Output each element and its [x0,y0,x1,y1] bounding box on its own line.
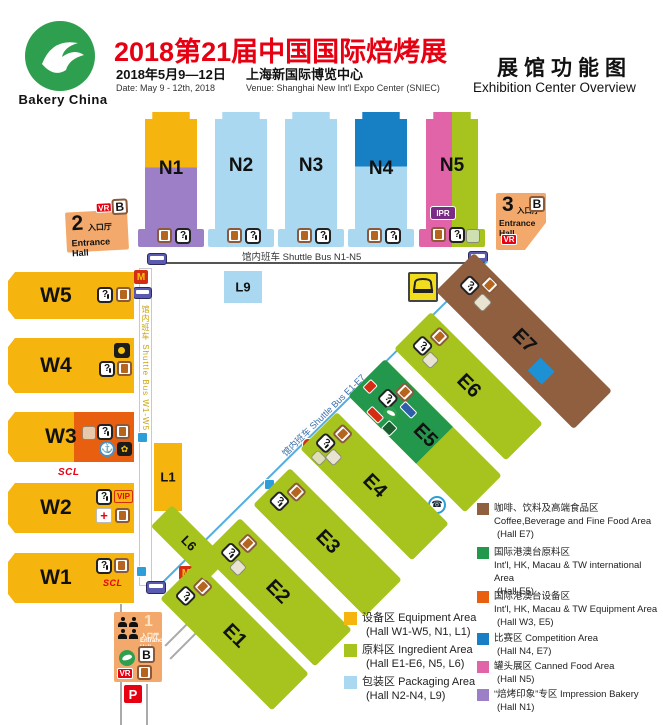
legend-halls: (Hall W1-W5, N1, L1) [362,625,476,639]
legend-en: Ingredient Area [398,644,473,656]
legend-coffee-text: 咖啡、饮料及高端食品区 Coffee,Beverage and Fine Foo… [494,502,651,541]
cloakroom-icon [117,361,132,376]
anchor-landmark-icon: ⚓ [99,441,115,457]
legend-zh: 设备区 [362,612,395,624]
info-icon-glyph: ? [382,392,394,404]
legend-intl-equipment-text: 国际港澳台设备区 Int'l, HK, Macau & TW Equipment… [494,590,657,629]
entrance-hall-2: 2 入口厅 Entrance Hall VR B [65,209,129,252]
overview-title-zh: 展馆功能图 [497,52,632,82]
hall-l9: L9 [224,271,262,303]
info-icon: ? [449,227,465,243]
baggage-badge: B [138,646,155,663]
service-icon [466,229,480,243]
photo-service-icon [114,343,130,358]
visitors-icon [129,617,138,627]
legend-en: Int'l, HK, Macau & TW international Area [494,559,659,585]
cloakroom-icon [115,508,130,523]
entrance-hall-1: 1 入口厅 Entrance Hall B VR [114,612,162,682]
rest-area-icon [408,272,438,302]
legend-canned-food-text: 罐头展区 Canned Food Area (Hall N5) [494,660,614,686]
info-icon: ? [385,228,401,244]
info-icon-glyph: ? [464,279,476,291]
hall-l9-label: L9 [235,280,250,295]
ipr-badge: IPR [430,206,456,220]
legend-zh: 原料区 [362,644,395,656]
legend-ingredient-text: 原料区 Ingredient Area (Hall E1-E6, N5, L6) [362,643,473,671]
exhibition-map: Bakery China 2018第21届中国国际焙烤展 2018年5月9—12… [0,0,663,725]
legend-line: 原料区 Ingredient Area [362,643,473,657]
legend-zh: 包装区 [362,676,395,688]
legend-swatch-impression-bakery [477,689,489,701]
hall-l1-label: L1 [160,470,175,485]
first-aid-icon: + [96,508,112,523]
info-icon-glyph: ? [320,437,332,449]
legend-zh: 国际港澳台设备区 [494,590,657,603]
legend-packaging-text: 包装区 Packaging Area (Hall N2-N4, L9) [362,675,475,703]
legend-swatch-canned-food [477,661,489,673]
shuttle-bus-icon [133,287,152,299]
hall-w3-label: W3 [45,425,77,449]
info-icon-glyph: ? [225,546,237,558]
cloakroom-icon [479,274,500,295]
info-icon: ? [245,228,261,244]
hall-e2-label: E2 [261,575,295,609]
visitors-icon [118,629,127,639]
legend-impression-bakery-text: “焙烤印象”专区 Impression Bakery (Hall N1) [494,688,639,714]
baggage-badge: B [529,196,545,212]
vr-badge: VR [96,202,113,213]
cloakroom-icon [114,558,129,573]
shuttle-label-w: 馆内班车 Shuttle Bus W1-W5 [140,305,151,585]
hall-l1: L1 [154,443,182,511]
cloakroom-icon [431,227,446,242]
hall-e4-label: E4 [358,469,392,503]
info-icon-glyph: ? [180,590,192,602]
hall-w5-label: W5 [40,284,72,308]
hall-n1: N1 [145,112,197,230]
brand-name: Bakery China [8,92,118,107]
legend-swatch-equipment [344,612,357,625]
vip-badge: VIP [114,490,133,503]
shuttle-label-n: 馆内班车 Shuttle Bus N1-N5 [242,249,361,263]
info-icon-glyph: ? [101,491,107,502]
mcdonalds-icon: M [134,270,148,284]
visitors-icon [118,617,127,627]
date-zh: 2018年5月9—12日 [116,64,226,83]
entrance-2-label-zh: 入口厅 [88,221,113,233]
legend-swatch-packaging [344,676,357,689]
shuttle-bus-icon [146,581,166,594]
legend-en: Equipment Area [398,612,476,624]
legend-line: 设备区 Equipment Area [362,611,476,625]
legend-ingredient: 原料区 Ingredient Area (Hall E1-E6, N5, L6) [344,643,473,671]
hall-w2-label: W2 [40,496,72,520]
info-icon: ? [99,361,115,377]
hall-n4-label: N4 [369,158,393,180]
info-icon: ? [97,287,113,303]
legend-zh: 国际港澳台原料区 [494,546,659,559]
parking-badge: P [124,685,142,703]
legend-halls: (Hall N1) [494,701,639,714]
entrance-2-number: 2 [71,212,84,237]
info-icon-glyph: ? [454,229,460,240]
cloakroom-icon [157,228,172,243]
info-icon: ? [96,489,112,505]
scl-logo: SCL [58,467,80,478]
entrance-1-number: 1 [144,613,153,631]
legend-swatch-ingredient [344,644,357,657]
hall-e7-competition-zone [528,358,555,385]
legend-packaging: 包装区 Packaging Area (Hall N2-N4, L9) [344,675,475,703]
info-icon-glyph: ? [320,230,326,241]
info-icon: ? [458,274,481,297]
legend-coffee: 咖啡、饮料及高端食品区 Coffee,Beverage and Fine Foo… [477,502,659,541]
legend-halls: (Hall W3, E5) [494,616,657,629]
hall-w4-label: W4 [40,354,72,378]
vr-badge: VR [117,668,133,679]
cloakroom-icon [115,424,130,439]
entrance-2-label-en: Entrance Hall [71,235,129,258]
bus-stop-badge [136,566,147,577]
legend-swatch-coffee [477,503,489,515]
venue-zh: 上海新国际博览中心 [246,64,363,83]
legend-zh: 比赛区 Competition Area [494,632,598,645]
visitors-icon [129,629,138,639]
legend-halls: (Hall N2-N4, L9) [362,689,475,703]
service-icon [473,293,493,313]
shuttle-bus-icon [147,253,167,265]
legend-zh: “焙烤印象”专区 Impression Bakery [494,688,639,701]
info-icon: ? [97,424,113,440]
hall-n1-label: N1 [159,158,183,180]
road-line [146,684,148,725]
hall-n4: N4 [355,112,407,230]
info-icon-glyph: ? [180,230,186,241]
service-icon [82,426,96,440]
legend-swatch-intl-equipment [477,591,489,603]
hall-e7-label: E7 [507,324,541,358]
hall-w1-label: W1 [40,566,72,590]
info-icon-glyph: ? [250,230,256,241]
hall-l6-label: L6 [178,533,199,554]
legend-equipment-text: 设备区 Equipment Area (Hall W1-W5, N1, L1) [362,611,476,639]
bakery-china-logo-icon [24,20,96,92]
bus-stop-badge [137,432,148,443]
info-icon-glyph: ? [390,230,396,241]
info-icon-glyph: ? [104,363,110,374]
hall-e1-label: E1 [218,619,252,653]
legend-equipment: 设备区 Equipment Area (Hall W1-W5, N1, L1) [344,611,476,639]
legend-competition-text: 比赛区 Competition Area (Hall N4, E7) [494,632,598,658]
vr-badge: VR [501,234,517,245]
legend-halls: (Hall N4, E7) [494,645,598,658]
bakery-china-mini-logo-icon [119,650,135,666]
legend-competition: 比赛区 Competition Area (Hall N4, E7) [477,632,659,658]
legend-halls: (Hall N5) [494,673,614,686]
overview-title-en: Exhibition Center Overview [473,80,636,95]
hall-n2: N2 [215,112,267,230]
hall-n5-label: N5 [440,155,464,177]
info-icon: ? [96,558,112,574]
hall-n3-label: N3 [299,155,323,177]
baggage-badge: B [111,198,128,215]
legend-canned-food: 罐头展区 Canned Food Area (Hall N5) [477,660,659,686]
cloakroom-icon [137,665,152,680]
info-icon-glyph: ? [101,560,107,571]
info-icon: ? [175,228,191,244]
venue-en: Venue: Shanghai New Int'l Expo Center (S… [246,83,440,93]
info-icon-glyph: ? [274,495,286,507]
entrance-hall-3: 3 入口厅 Entrance Hall B VR [496,193,546,250]
date-en: Date: May 9 - 12th, 2018 [116,83,215,93]
shuttle-road-w: 馆内班车 Shuttle Bus W1-W5 [139,268,152,586]
hall-n2-label: N2 [229,155,253,177]
legend-en: Coffee,Beverage and Fine Food Area [494,515,651,528]
legend-intl-equipment: 国际港澳台设备区 Int'l, HK, Macau & TW Equipment… [477,590,659,629]
legend-en: Int'l, HK, Macau & TW Equipment Area [494,603,657,616]
legend-impression-bakery: “焙烤印象”专区 Impression Bakery (Hall N1) [477,688,659,714]
legend-zh: 咖啡、饮料及高端食品区 [494,502,651,515]
cloakroom-icon [116,287,131,302]
legend-swatch-competition [477,633,489,645]
legend-halls: (Hall E1-E6, N5, L6) [362,657,473,671]
info-icon-glyph: ? [102,289,108,300]
legend-swatch-intl-ingredient [477,547,489,559]
legend-en: Packaging Area [398,676,475,688]
hall-e3-label: E3 [311,525,345,559]
info-icon-glyph: ? [102,426,108,437]
entrance-3-number: 3 [502,193,514,217]
info-icon-glyph: ? [417,340,429,352]
cloakroom-icon [227,228,242,243]
flower-icon: ✿ [117,442,132,456]
info-icon: ? [315,228,331,244]
legend-halls: (Hall E7) [494,528,651,541]
scl-logo: SCL [103,578,123,588]
cloakroom-icon [297,228,312,243]
hall-e6-label: E6 [452,369,486,403]
legend-zh: 罐头展区 Canned Food Area [494,660,614,673]
legend-line: 包装区 Packaging Area [362,675,475,689]
hall-n3: N3 [285,112,337,230]
cloakroom-icon [367,228,382,243]
